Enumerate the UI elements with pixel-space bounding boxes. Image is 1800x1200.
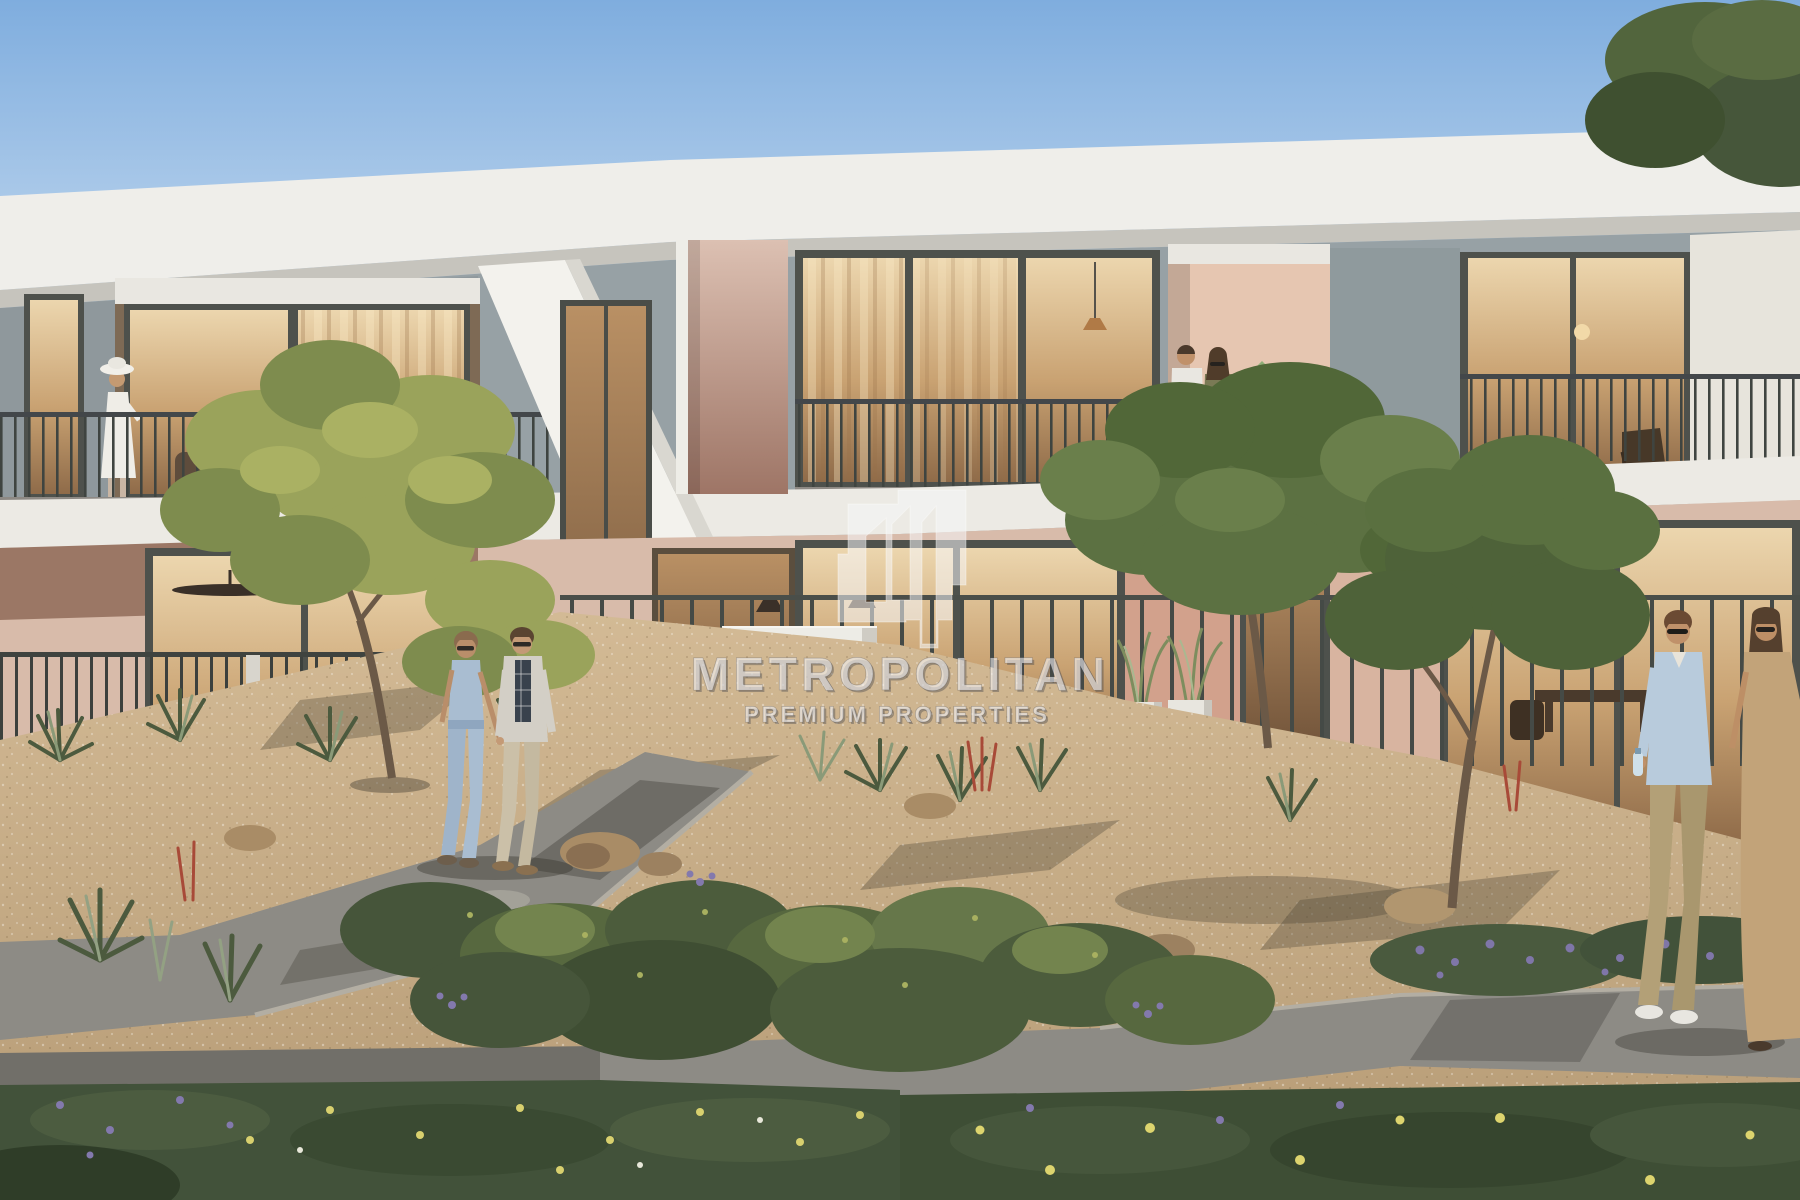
sunglasses-icon [1756,627,1775,632]
balcony-ceiling [1168,244,1330,264]
mauve-recess-panel [676,240,788,494]
sunglasses-icon [513,642,531,647]
held-hands [496,737,504,745]
interior-lamp-glow [1574,324,1590,340]
render-canvas: METROPOLITAN METROPOLITAN PREMIUM PROPER… [0,0,1800,1200]
flower-strip-bottom-left [0,1080,900,1200]
flower-strip-bottom-right [900,1082,1800,1200]
water-bottle [1633,752,1643,776]
sunglasses-icon [457,646,474,651]
watermark-tagline: PREMIUM PROPERTIES [744,702,1050,727]
sunglasses-icon [1667,629,1688,634]
watermark-brand: METROPOLITAN [691,648,1110,700]
sunglasses-icon [1210,362,1225,366]
balcony-ceiling [115,278,480,304]
townhouse-render: METROPOLITAN METROPOLITAN PREMIUM PROPER… [0,0,1800,1200]
